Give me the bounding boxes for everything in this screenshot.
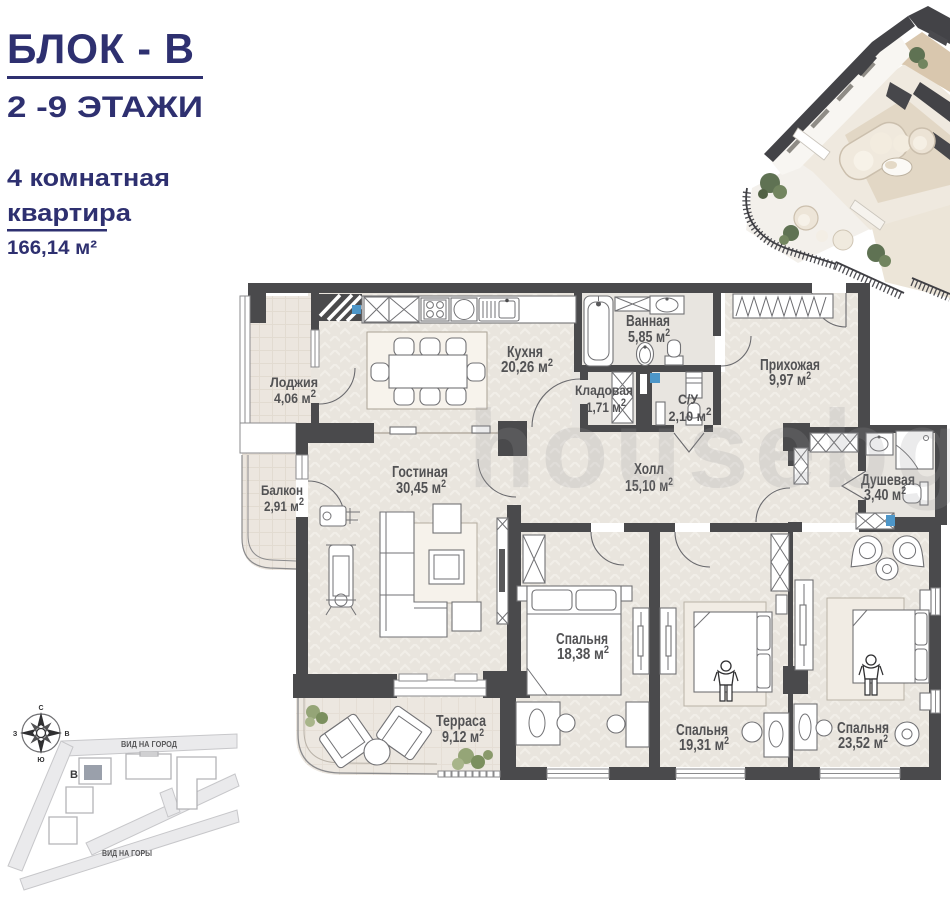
svg-text:Гостиная: Гостиная xyxy=(392,464,448,481)
svg-text:С: С xyxy=(38,705,43,712)
svg-text:20,26 м2: 20,26 м2 xyxy=(501,357,553,376)
svg-text:18,38 м2: 18,38 м2 xyxy=(557,644,609,663)
svg-text:Ю: Ю xyxy=(37,757,44,764)
svg-text:9,97 м2: 9,97 м2 xyxy=(769,370,811,389)
svg-text:19,31 м2: 19,31 м2 xyxy=(679,735,729,754)
svg-text:2,91 м2: 2,91 м2 xyxy=(264,496,304,514)
svg-text:166,14 м²: 166,14 м² xyxy=(7,238,97,259)
svg-text:квартира: квартира xyxy=(7,200,132,227)
svg-text:Балкон: Балкон xyxy=(261,482,303,498)
svg-text:В: В xyxy=(70,769,78,781)
svg-text:housebg: housebg xyxy=(468,388,950,511)
svg-text:Ванная: Ванная xyxy=(626,313,670,330)
svg-text:БЛОК - В: БЛОК - В xyxy=(7,25,195,72)
svg-text:ВИД НА ГОРОД: ВИД НА ГОРОД xyxy=(121,739,177,749)
svg-text:23,52 м2: 23,52 м2 xyxy=(838,733,888,752)
svg-text:4 комнатная: 4 комнатная xyxy=(7,165,170,192)
svg-text:З: З xyxy=(13,731,18,738)
svg-text:30,45 м2: 30,45 м2 xyxy=(396,478,446,497)
svg-text:4,06 м2: 4,06 м2 xyxy=(274,388,316,406)
svg-text:9,12 м2: 9,12 м2 xyxy=(442,727,484,746)
svg-text:ВИД НА ГОРЫ: ВИД НА ГОРЫ xyxy=(102,848,152,858)
svg-text:5,85 м2: 5,85 м2 xyxy=(628,327,670,346)
svg-text:2 -9 ЭТАЖИ: 2 -9 ЭТАЖИ xyxy=(7,91,203,124)
svg-text:В: В xyxy=(64,731,69,738)
